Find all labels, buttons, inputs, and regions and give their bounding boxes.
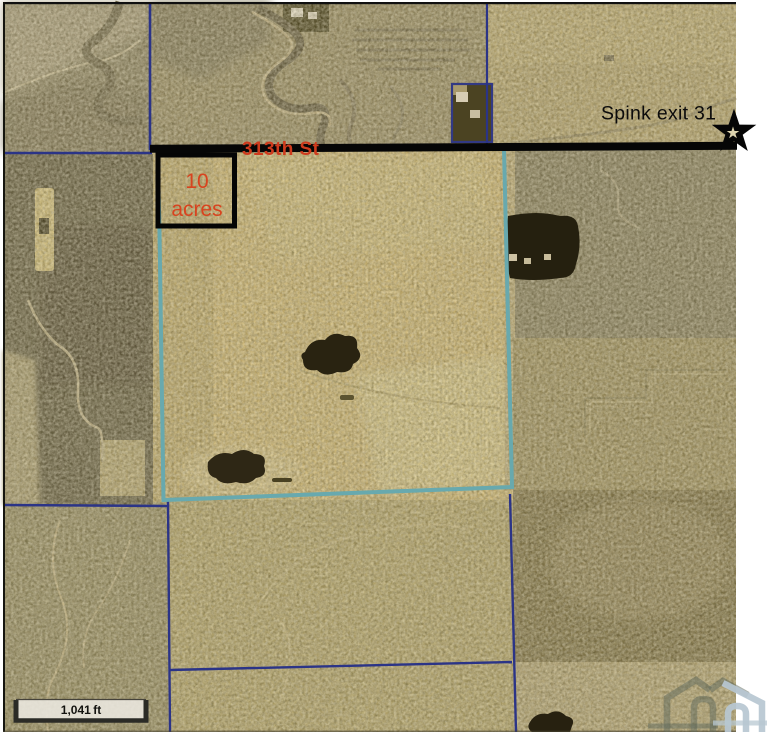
svg-text:acres: acres (171, 198, 222, 221)
svg-text:1,041 ft: 1,041 ft (61, 703, 101, 717)
svg-text:313th St: 313th St (242, 139, 320, 160)
svg-text:Spink exit 31: Spink exit 31 (601, 103, 716, 125)
svg-text:10: 10 (185, 170, 208, 193)
